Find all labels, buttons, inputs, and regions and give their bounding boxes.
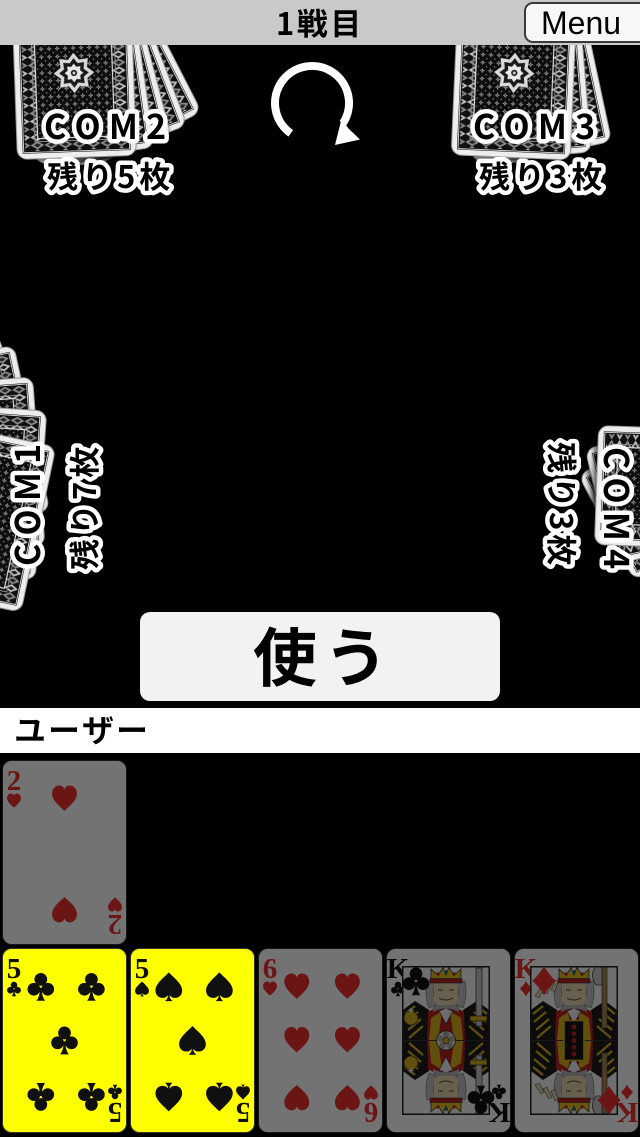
- svg-text:5: 5: [7, 953, 22, 985]
- svg-text:5: 5: [236, 1096, 251, 1128]
- svg-text:5: 5: [135, 953, 150, 985]
- svg-text:5: 5: [108, 1096, 123, 1128]
